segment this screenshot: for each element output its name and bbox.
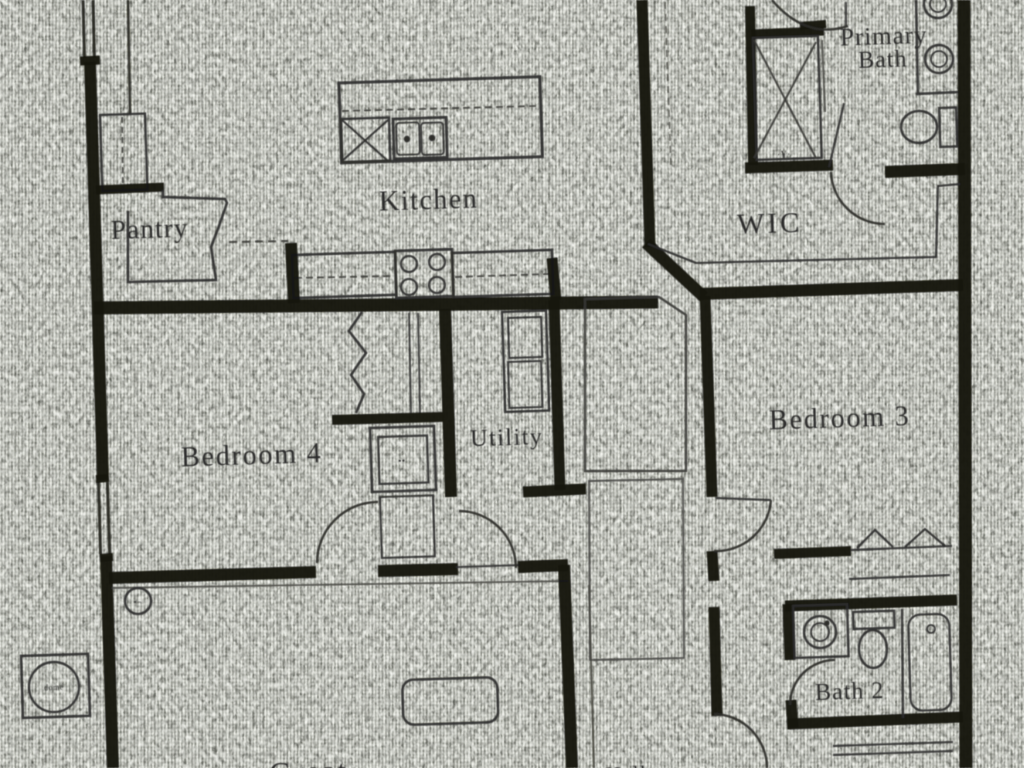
- svg-text:Great: Great: [269, 753, 349, 768]
- svg-text:Kitchen: Kitchen: [379, 183, 479, 217]
- svg-text:WIC: WIC: [737, 207, 803, 241]
- svg-text:•¬: •¬: [134, 598, 143, 607]
- svg-text:Bath: Bath: [858, 46, 908, 74]
- svg-text:dome: dome: [44, 683, 64, 693]
- svg-text:••: ••: [398, 456, 406, 466]
- svg-text:Bath 2: Bath 2: [815, 678, 885, 706]
- svg-text:Bedroom 3: Bedroom 3: [769, 401, 911, 436]
- svg-text:Utility: Utility: [470, 424, 544, 452]
- svg-text:Bedroom 4: Bedroom 4: [181, 438, 323, 473]
- svg-text:Pantry: Pantry: [110, 213, 189, 245]
- svg-text:·¥·: ·¥·: [777, 149, 792, 161]
- svg-text:Hallway: Hallway: [605, 760, 687, 768]
